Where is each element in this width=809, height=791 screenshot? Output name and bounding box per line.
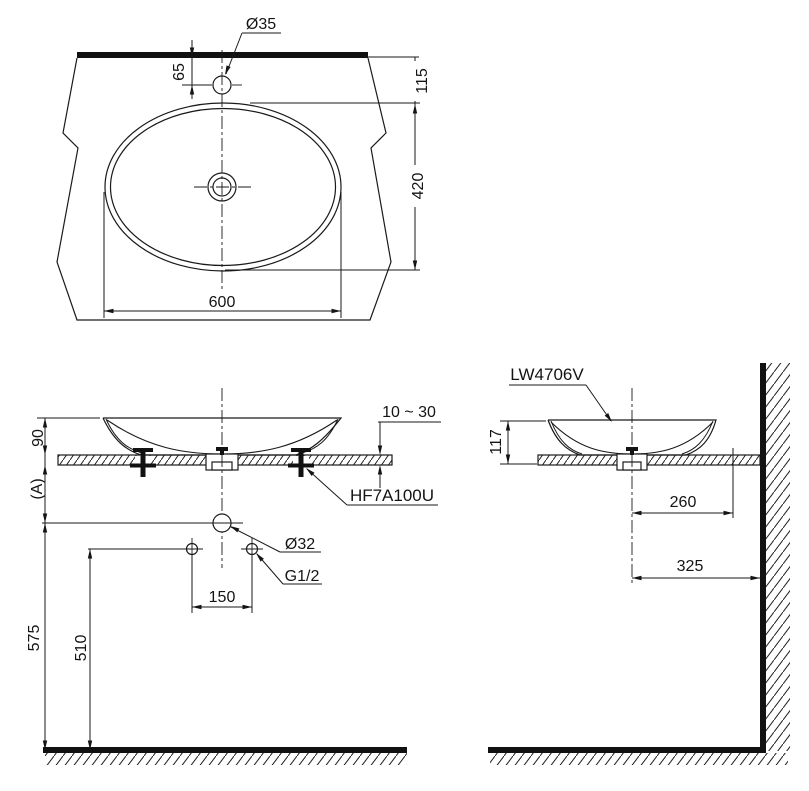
dimension-labels: Ø35 65 115 420 600 90 (A) 10 ~ 30 HF7A10… — [26, 16, 703, 661]
label-bowl-width: 600 — [209, 294, 236, 311]
side-view — [488, 363, 790, 765]
wall-side — [760, 363, 766, 753]
floor-side — [488, 747, 763, 753]
label-counter-thickness: 10 ~ 30 — [382, 404, 436, 421]
countertop-side — [538, 455, 760, 465]
wall-section-plan — [77, 52, 368, 58]
installation-drawing-sheet: Ø35 65 115 420 600 90 (A) 10 ~ 30 HF7A10… — [0, 0, 809, 791]
label-supply-spacing: 150 — [209, 589, 236, 606]
label-rim-height: 90 — [30, 429, 47, 447]
label-drain-dia: Ø32 — [285, 536, 315, 553]
label-faucet-offset: 65 — [171, 63, 188, 81]
label-bracket-code: HF7A100U — [350, 486, 434, 505]
plan-view — [57, 33, 420, 320]
dimension-arrows — [43, 48, 760, 751]
front-view — [37, 388, 441, 765]
label-floor-to-drain: 575 — [26, 625, 43, 652]
label-center-to-wall: 325 — [677, 558, 704, 575]
label-center-to-hole: 260 — [670, 494, 697, 511]
technical-drawing: Ø35 65 115 420 600 90 (A) 10 ~ 30 HF7A10… — [0, 0, 809, 791]
label-counter-to-drain: (A) — [29, 478, 46, 499]
floor-front — [43, 747, 407, 753]
label-bowl-depth: 420 — [410, 173, 427, 200]
label-wall-to-bowl: 115 — [414, 68, 431, 94]
label-floor-to-supply: 510 — [73, 635, 90, 662]
label-model-code: LW4706V — [510, 365, 584, 384]
label-supply-thread: G1/2 — [285, 568, 320, 585]
label-faucet-hole-dia: Ø35 — [246, 16, 276, 33]
label-basin-height: 117 — [488, 429, 505, 455]
